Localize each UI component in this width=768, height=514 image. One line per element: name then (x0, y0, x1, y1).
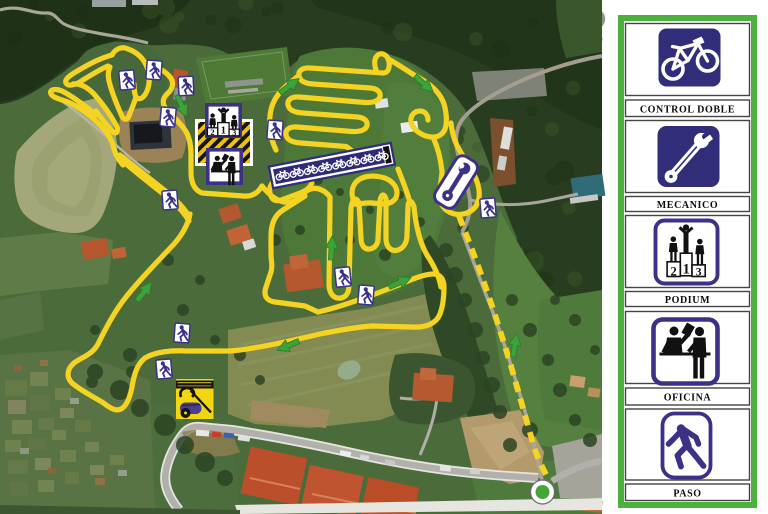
svg-text:1: 1 (683, 262, 690, 278)
svg-text:CONTROL DOBLE: CONTROL DOBLE (640, 105, 735, 116)
svg-text:2: 2 (670, 264, 676, 278)
svg-text:1: 1 (221, 126, 226, 137)
svg-text:PASO: PASO (673, 489, 701, 500)
svg-text:MECANICO: MECANICO (657, 200, 718, 211)
svg-text:PODIUM: PODIUM (665, 295, 710, 306)
svg-text:2: 2 (210, 127, 215, 137)
svg-text:3: 3 (696, 267, 702, 279)
svg-text:OFICINA: OFICINA (664, 393, 712, 404)
svg-text:3: 3 (232, 128, 236, 137)
